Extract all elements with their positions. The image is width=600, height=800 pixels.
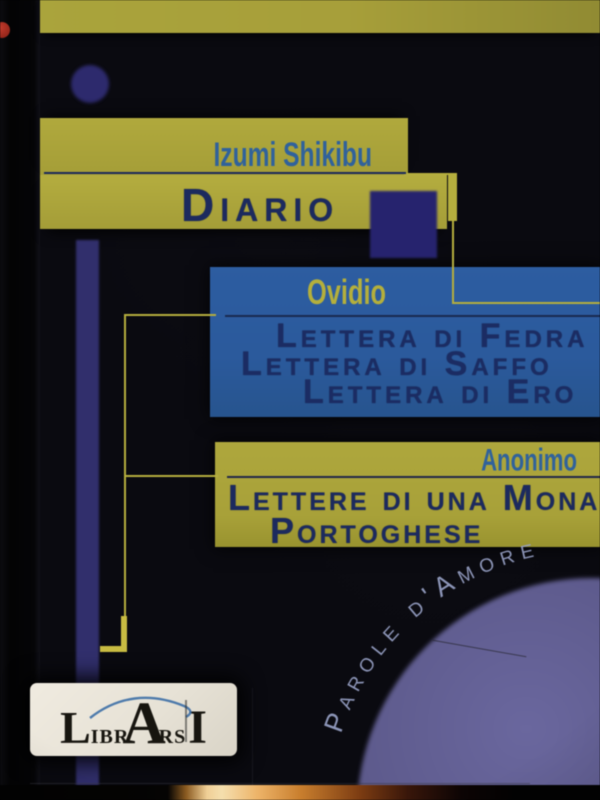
connector-line-right-bottom [452,302,600,304]
connector-line-left-middle [124,475,218,477]
bottom-edge-line [30,783,530,784]
title-lettera-di-ero: Lettera di Ero [303,373,577,412]
logo-s-stroke [185,700,187,742]
author-izumi-shikibu: Izumi Shikibu [213,136,372,175]
logo-letter-l: L [60,705,91,751]
connector-line-left-vertical [124,315,126,651]
bottom-glow-strip [0,785,600,800]
swoosh-curve [90,698,190,718]
author-anonimo: Anonimo [481,443,577,479]
title-diario: Diario [181,178,339,232]
navy-square-ornament [370,191,437,258]
title-portoghese: Portoghese [270,510,483,552]
background-left-strip [0,0,40,800]
connector-line-left-top [124,314,216,316]
series-title-text: Parole d'Amore [318,531,543,736]
top-yellow-band [40,0,600,33]
series-title-arc: Parole d'Amore [300,535,600,800]
yellow-bracket-horizontal [100,646,127,652]
connector-line-right-thick [448,173,457,221]
logo-swoosh-icon [88,692,208,722]
book-cover-photo: Izumi Shikibu Diario Ovidio Lettera di F… [0,0,600,800]
blue-dot-ornament [71,65,109,103]
author-ovidio: Ovidio [307,272,386,313]
connector-line-right-vertical [452,218,454,304]
